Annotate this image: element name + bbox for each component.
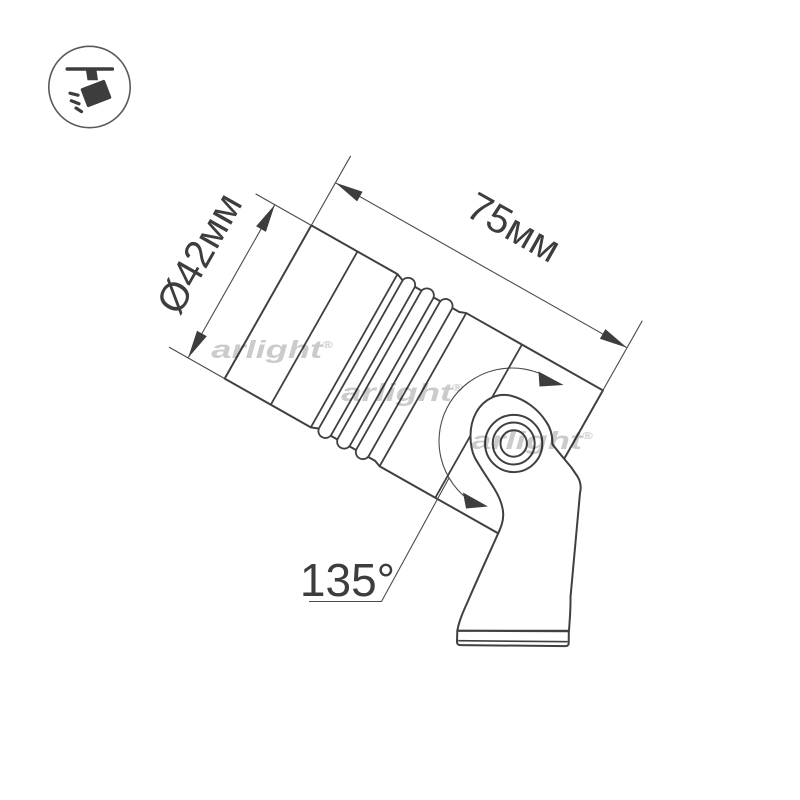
svg-text:arlight®: arlight® <box>211 336 333 364</box>
svg-text:arlight®: arlight® <box>341 379 463 407</box>
svg-text:135°: 135° <box>300 554 395 606</box>
svg-text:arlight®: arlight® <box>471 427 593 455</box>
